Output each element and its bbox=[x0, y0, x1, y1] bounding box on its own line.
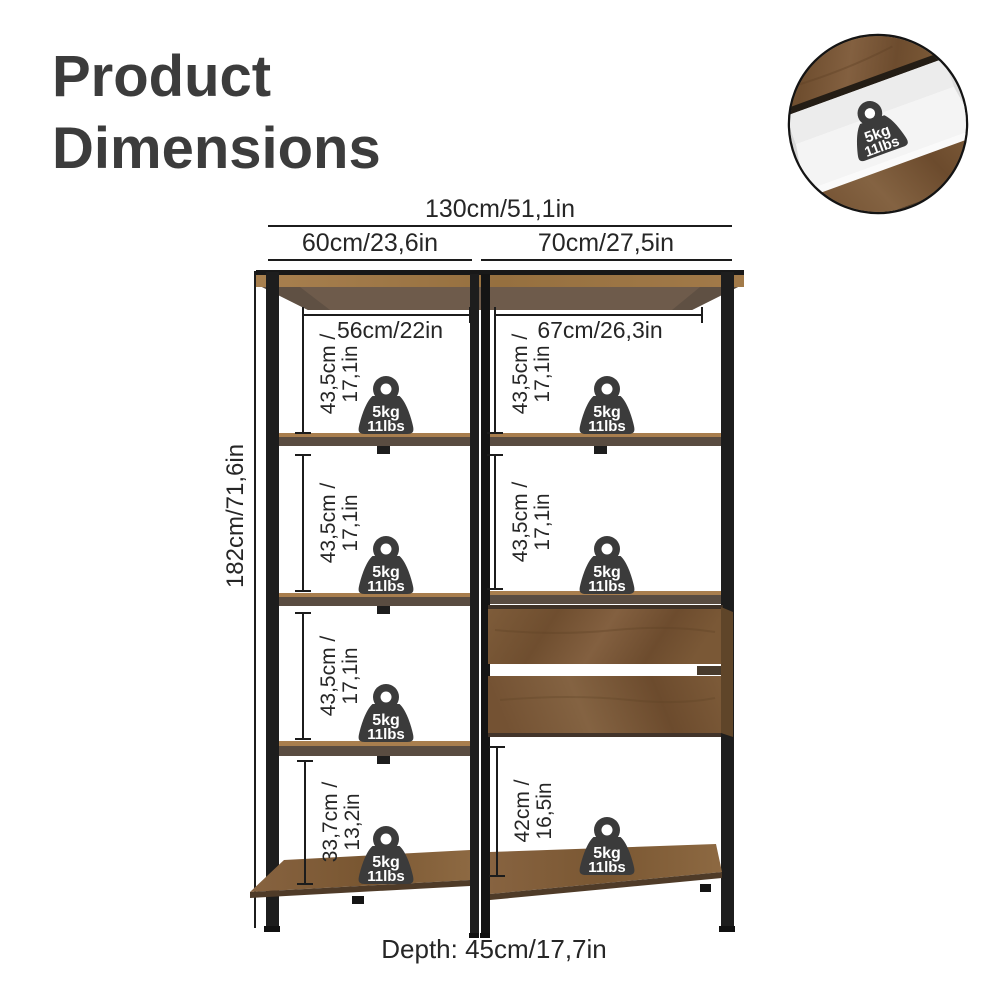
overall-width-dimension: 130cm/51,1in bbox=[268, 195, 732, 226]
drawer-side-panel bbox=[721, 607, 733, 737]
tier-right-1-label-line1: 43,5cm / bbox=[509, 334, 532, 415]
drawer-top bbox=[488, 609, 721, 664]
weight-lbs-label: 11lbs bbox=[367, 868, 405, 885]
tier-left-3-label-line1: 43,5cm / bbox=[317, 636, 340, 717]
tier-right-2-label-line2: 17,1in bbox=[531, 493, 554, 550]
weight-lbs-label: 11lbs bbox=[367, 578, 405, 595]
drawer-bottom bbox=[488, 676, 721, 733]
right-column-width-dimension: 70cm/27,5in bbox=[481, 229, 732, 260]
weight-icon-left-4: 5kg 11lbs bbox=[359, 826, 414, 885]
tier-dimension-right-2: 43,5cm / 17,1in bbox=[487, 455, 554, 589]
tier-right-2-label-line1: 43,5cm / bbox=[509, 482, 532, 563]
drawer-detail-inset: 5kg 11lbs bbox=[738, 0, 1000, 250]
weight-lbs-label: 11lbs bbox=[588, 578, 626, 595]
weight-icon-left-2: 5kg 11lbs bbox=[359, 536, 414, 595]
tier-dimension-left-3: 43,5cm / 17,1in bbox=[295, 613, 362, 739]
tier-right-1-label-line2: 17,1in bbox=[531, 345, 554, 402]
shelf-left-1 bbox=[279, 433, 470, 454]
tier-left-1-label-line1: 43,5cm / bbox=[317, 334, 340, 415]
tier-left-4-label-line1: 33,7cm / bbox=[319, 782, 342, 863]
frame-post-center-right bbox=[481, 274, 490, 933]
overall-height-label: 182cm/71,6in bbox=[222, 444, 249, 588]
weight-icon-left-3: 5kg 11lbs bbox=[359, 684, 414, 743]
drawer-bottom-edge bbox=[488, 733, 721, 737]
overall-height-dimension: 182cm/71,6in bbox=[222, 271, 255, 928]
weight-icon-left-1: 5kg 11lbs bbox=[359, 376, 414, 435]
tier-left-2-label-line1: 43,5cm / bbox=[317, 483, 340, 564]
product-dimensions-diagram: Product Dimensions 130cm/51,1in 60cm/23,… bbox=[0, 0, 1000, 1000]
drawer-gap-notch bbox=[697, 666, 721, 675]
top-panel bbox=[256, 270, 744, 310]
left-column-width-dimension: 60cm/23,6in bbox=[268, 229, 472, 260]
left-inner-width-label: 56cm/22in bbox=[337, 317, 443, 343]
page-title-line2: Dimensions bbox=[52, 116, 381, 181]
tier-right-4-label-line2: 16,5in bbox=[533, 782, 556, 839]
drawer-unit bbox=[488, 605, 733, 737]
drawer-top-edge bbox=[488, 605, 723, 609]
weight-icon-right-4: 5kg 11lbs bbox=[580, 817, 635, 876]
shelf-right-1 bbox=[490, 433, 721, 454]
tier-left-1-label-line2: 17,1in bbox=[339, 345, 362, 402]
tier-left-2-label-line2: 17,1in bbox=[339, 494, 362, 551]
right-column-width-label: 70cm/27,5in bbox=[538, 229, 674, 257]
page-title-line1: Product bbox=[52, 44, 271, 109]
overall-width-label: 130cm/51,1in bbox=[425, 195, 575, 223]
frame-post-center-left bbox=[470, 274, 479, 933]
left-column-width-label: 60cm/23,6in bbox=[302, 229, 438, 257]
weight-lbs-label: 11lbs bbox=[367, 418, 405, 435]
right-inner-width-label: 67cm/26,3in bbox=[537, 317, 662, 343]
weight-icon-right-1: 5kg 11lbs bbox=[580, 376, 635, 435]
weight-lbs-label: 11lbs bbox=[588, 859, 626, 876]
depth-label: Depth: 45cm/17,7in bbox=[381, 934, 606, 964]
weight-lbs-label: 11lbs bbox=[588, 418, 626, 435]
weight-lbs-label: 11lbs bbox=[367, 726, 405, 743]
frame-post-left bbox=[266, 272, 279, 926]
weight-icon-right-2: 5kg 11lbs bbox=[580, 536, 635, 595]
tier-left-3-label-line2: 17,1in bbox=[339, 647, 362, 704]
frame-post-right bbox=[721, 272, 734, 926]
tier-right-4-label-line1: 42cm / bbox=[511, 779, 534, 842]
shelf-left-2 bbox=[279, 593, 470, 614]
tier-dimension-left-2: 43,5cm / 17,1in bbox=[295, 455, 362, 591]
page-title: Product Dimensions bbox=[52, 44, 381, 181]
tier-left-4-label-line2: 13,2in bbox=[341, 793, 364, 850]
